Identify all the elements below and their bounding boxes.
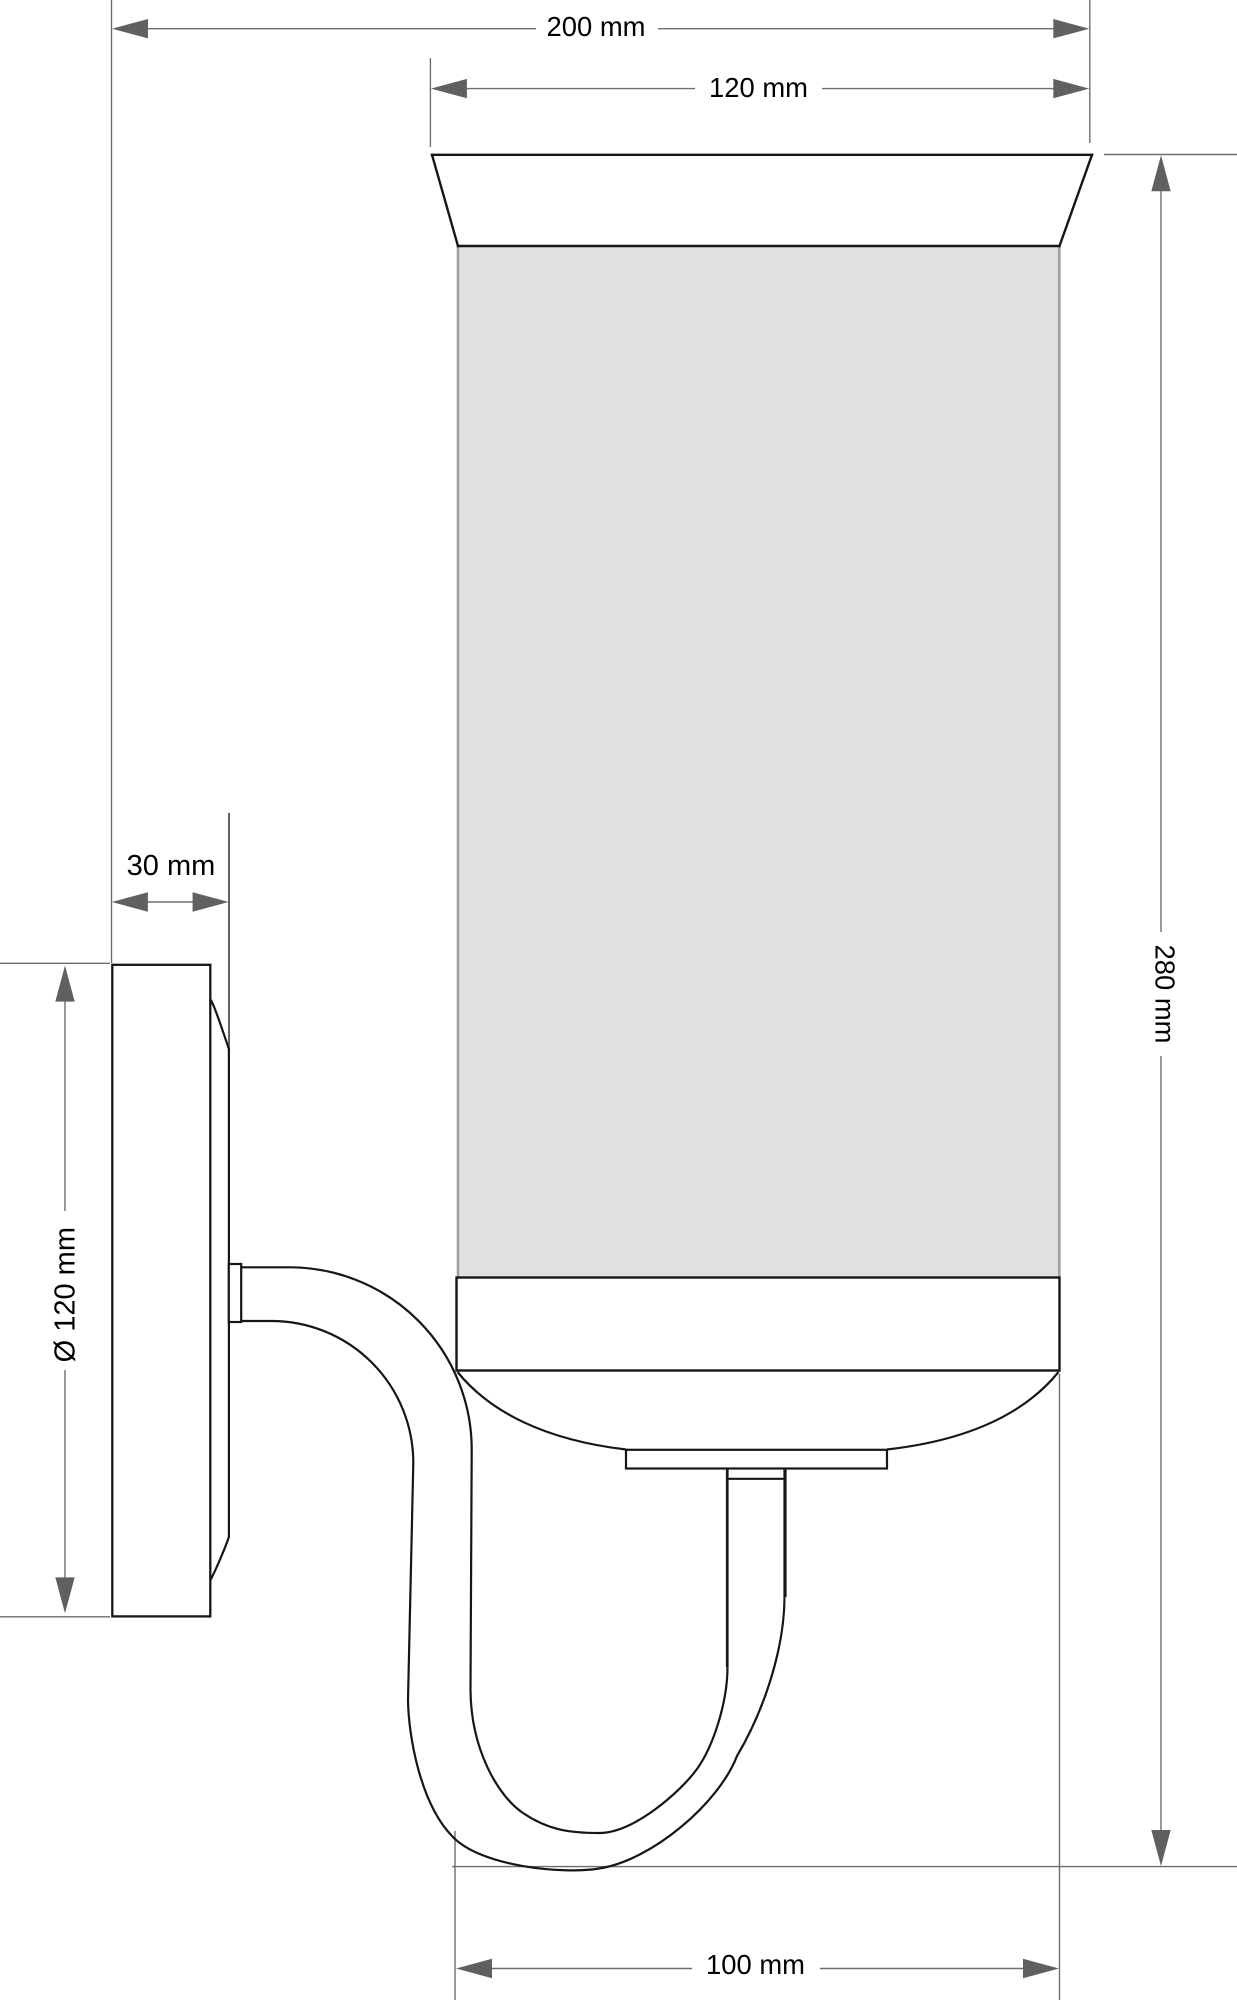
- svg-text:Ø 120 mm: Ø 120 mm: [50, 1227, 82, 1362]
- svg-text:30 mm: 30 mm: [127, 850, 216, 882]
- svg-text:120 mm: 120 mm: [709, 72, 808, 103]
- svg-text:200 mm: 200 mm: [547, 11, 646, 42]
- svg-text:280 mm: 280 mm: [1150, 945, 1181, 1044]
- svg-text:100 mm: 100 mm: [706, 1949, 805, 1980]
